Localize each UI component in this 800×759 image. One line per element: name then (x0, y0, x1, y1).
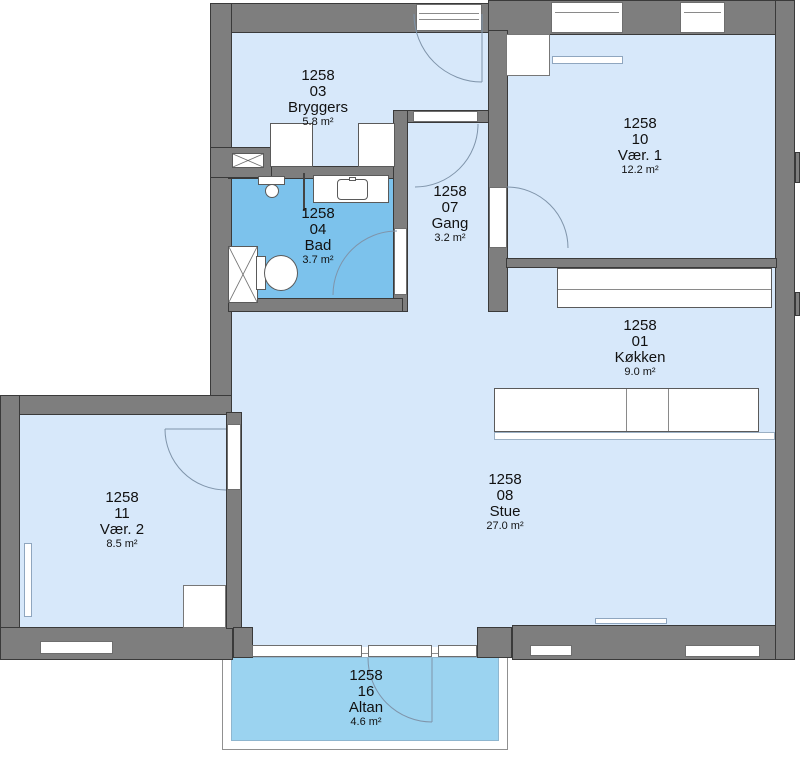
wall-stub-right-2 (795, 292, 800, 316)
kitchen-counter-edge (494, 432, 775, 440)
stue-glass-band (233, 627, 512, 647)
window-vaer1-right (680, 2, 725, 33)
vent-shaft-bryggers (232, 153, 264, 168)
shower-head (265, 184, 279, 198)
window-vaer2-bottom (40, 641, 113, 654)
wall-vaer2-bottom (0, 627, 233, 660)
wall-stub-right-1 (795, 152, 800, 183)
window-stue-balcony-2 (438, 645, 477, 657)
door-opening-bryggers-gang (413, 111, 478, 122)
door-opening-vaer2 (227, 424, 241, 490)
wall-vaer2-top (0, 395, 232, 415)
window-stue-bottom-2 (685, 645, 760, 657)
radiator-stue (595, 618, 667, 624)
wall-vaer2-left (0, 395, 20, 660)
window-sill-vaer1 (552, 56, 623, 64)
balcony-door-opening (368, 645, 432, 657)
wall-stue-balcony-right (477, 627, 512, 658)
door-opening-bad (394, 228, 407, 295)
kitchen-counter-wall (557, 268, 772, 308)
sink-basin (337, 179, 368, 200)
wall-top-right (488, 0, 795, 35)
room-stue-floor (226, 300, 777, 627)
washing-machine-1 (270, 123, 313, 167)
kitchen-island (494, 388, 759, 432)
room-altan-floor (231, 657, 499, 741)
door-opening-gang-vaer1 (489, 187, 507, 248)
window-vaer1-left (551, 2, 623, 33)
room-gang-floor (407, 110, 493, 315)
toilet-bowl (264, 255, 298, 291)
vent-shaft-bad (228, 246, 258, 303)
shower-partition (303, 173, 305, 211)
wall-koekken-vaer1 (506, 258, 777, 268)
radiator-vaer2 (24, 543, 32, 617)
window-stue-balcony-1 (252, 645, 362, 657)
floor-plan: 1258 03 Bryggers 5.8 m² 1258 10 Vær. 1 1… (0, 0, 800, 759)
entrance-door-opening (416, 4, 482, 31)
washing-machine-2 (358, 123, 395, 167)
closet-vaer1 (506, 34, 550, 76)
window-stue-bottom-1 (530, 645, 572, 656)
wall-gang-right (488, 30, 508, 312)
closet-vaer2 (183, 585, 226, 628)
sink-tap (349, 177, 356, 181)
wall-right (775, 0, 795, 660)
wall-left (210, 3, 232, 413)
wall-stue-balcony-left (233, 627, 253, 658)
